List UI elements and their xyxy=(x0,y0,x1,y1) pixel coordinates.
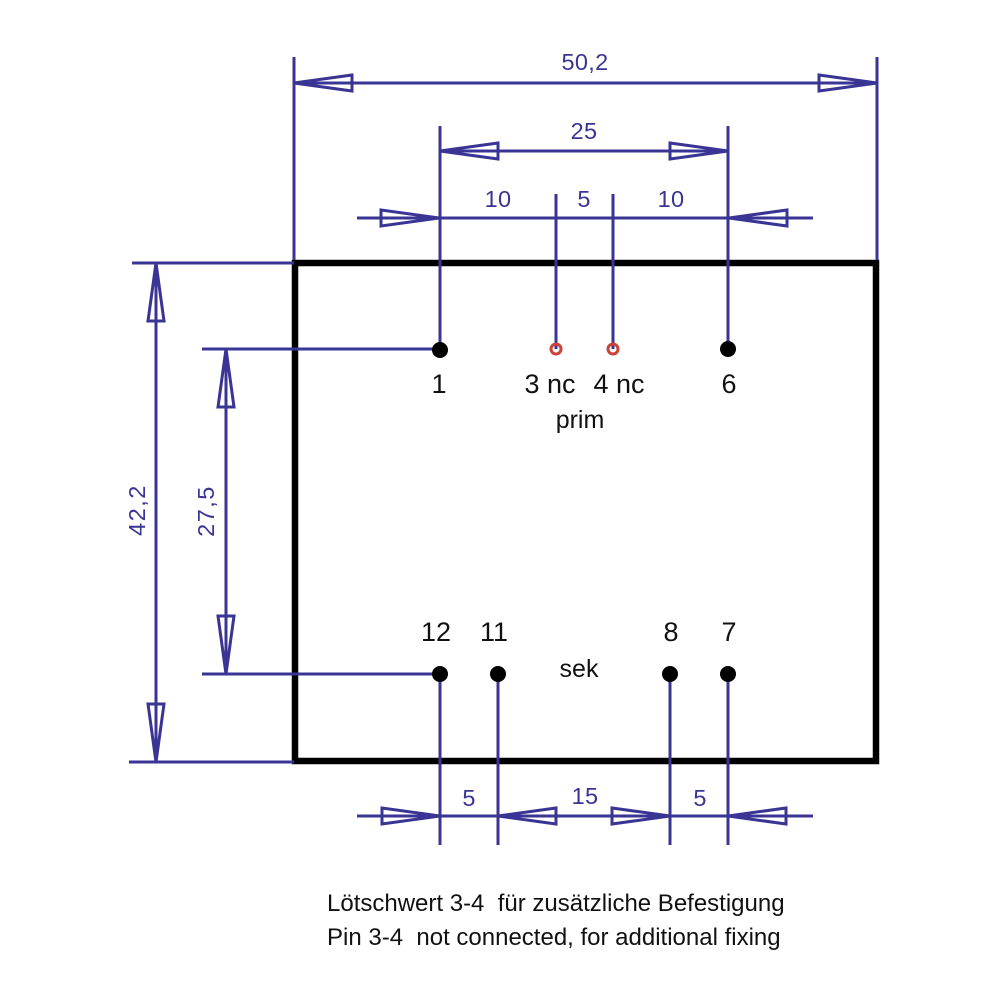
svg-text:12: 12 xyxy=(421,617,451,647)
svg-text:3 nc: 3 nc xyxy=(524,369,575,399)
svg-text:prim: prim xyxy=(556,406,605,434)
svg-text:5: 5 xyxy=(693,785,706,811)
svg-text:5: 5 xyxy=(462,785,475,811)
svg-text:Pin 3-4 not connected, for ad: Pin 3-4 not connected, for additional fi… xyxy=(327,924,781,951)
svg-text:10: 10 xyxy=(658,186,685,212)
svg-text:50,2: 50,2 xyxy=(562,49,609,75)
svg-text:1: 1 xyxy=(431,369,446,399)
svg-text:6: 6 xyxy=(721,369,736,399)
svg-text:42,2: 42,2 xyxy=(124,484,150,536)
svg-text:Lötschwert 3-4 für zusätzlich: Lötschwert 3-4 für zusätzliche Befestigu… xyxy=(327,890,785,917)
svg-text:7: 7 xyxy=(721,617,736,647)
svg-text:sek: sek xyxy=(560,655,599,683)
svg-text:27,5: 27,5 xyxy=(193,485,219,537)
svg-text:25: 25 xyxy=(571,118,598,144)
svg-text:10: 10 xyxy=(485,186,512,212)
svg-text:15: 15 xyxy=(572,783,599,809)
svg-text:11: 11 xyxy=(480,617,508,647)
svg-text:5: 5 xyxy=(577,186,590,212)
svg-text:8: 8 xyxy=(663,617,678,647)
svg-text:4 nc: 4 nc xyxy=(593,369,644,399)
